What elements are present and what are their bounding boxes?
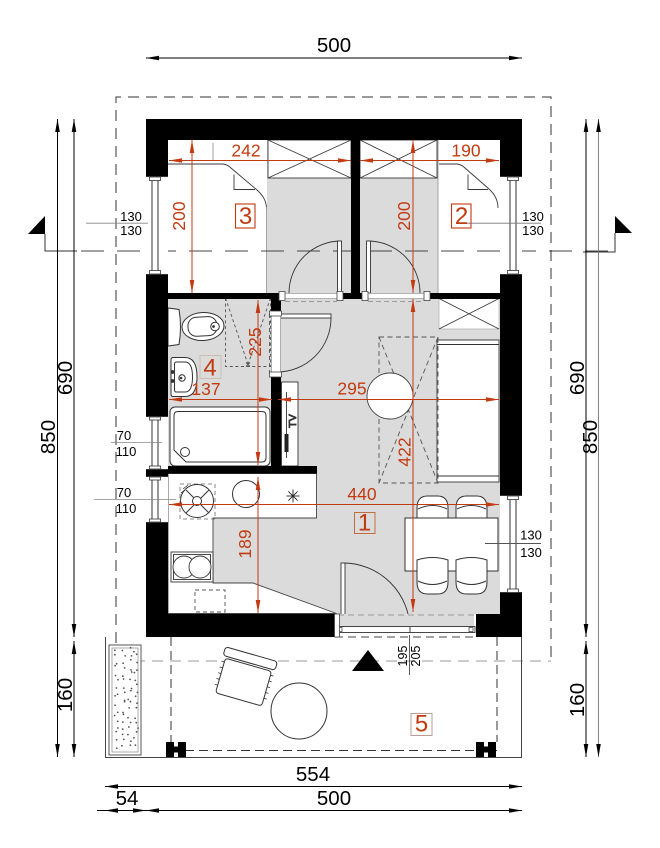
svg-text:5: 5 xyxy=(415,711,428,738)
svg-text:554: 554 xyxy=(296,763,330,786)
svg-text:130: 130 xyxy=(522,209,544,224)
svg-text:200: 200 xyxy=(169,201,189,230)
svg-text:500: 500 xyxy=(317,34,351,57)
svg-text:242: 242 xyxy=(231,141,260,161)
svg-text:850: 850 xyxy=(579,420,602,454)
svg-text:130: 130 xyxy=(120,209,142,224)
svg-text:195: 195 xyxy=(396,646,410,667)
svg-text:130: 130 xyxy=(520,545,542,560)
svg-text:137: 137 xyxy=(191,379,220,399)
svg-text:110: 110 xyxy=(116,444,137,459)
svg-text:295: 295 xyxy=(337,379,366,399)
svg-text:4: 4 xyxy=(203,355,216,382)
svg-text:54: 54 xyxy=(116,787,139,810)
svg-text:422: 422 xyxy=(395,437,415,466)
svg-text:130: 130 xyxy=(520,528,542,543)
svg-text:3: 3 xyxy=(239,203,252,230)
svg-text:225: 225 xyxy=(245,327,265,356)
svg-text:500: 500 xyxy=(317,787,351,810)
svg-text:440: 440 xyxy=(347,484,376,504)
svg-text:70: 70 xyxy=(117,428,131,443)
svg-text:160: 160 xyxy=(54,678,77,712)
svg-text:205: 205 xyxy=(409,646,423,667)
svg-text:690: 690 xyxy=(54,361,77,395)
svg-text:130: 130 xyxy=(120,223,142,238)
svg-text:70: 70 xyxy=(117,485,131,500)
svg-text:160: 160 xyxy=(566,683,589,717)
svg-text:110: 110 xyxy=(116,501,137,516)
svg-text:690: 690 xyxy=(566,361,589,395)
svg-text:190: 190 xyxy=(451,141,480,161)
svg-text:130: 130 xyxy=(522,223,544,238)
svg-text:1: 1 xyxy=(358,510,371,537)
svg-text:189: 189 xyxy=(235,529,255,558)
svg-text:2: 2 xyxy=(455,203,468,230)
svg-text:850: 850 xyxy=(37,420,60,454)
svg-text:TV: TV xyxy=(287,414,299,427)
svg-text:200: 200 xyxy=(394,201,414,230)
